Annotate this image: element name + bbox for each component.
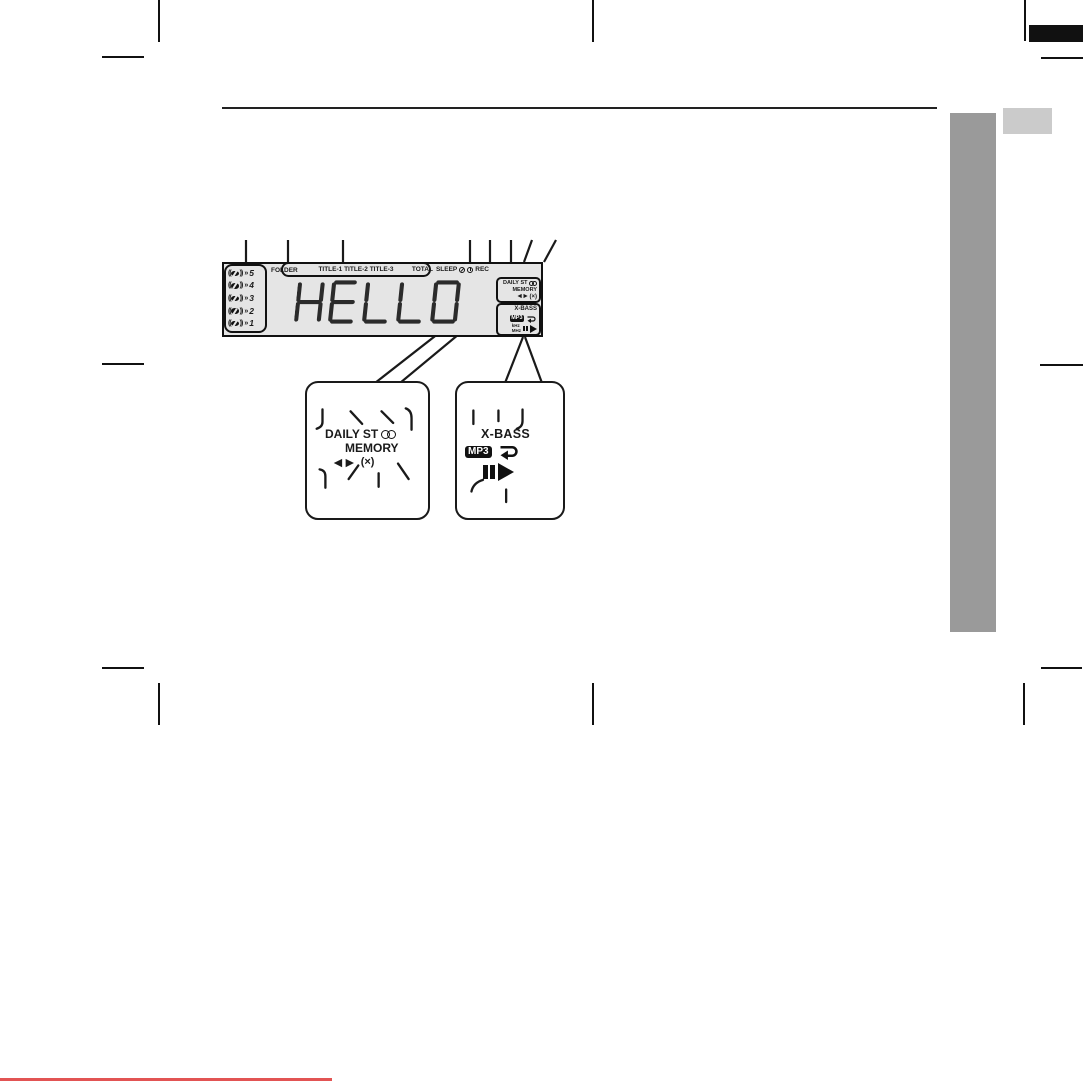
- heading-rule: [222, 107, 937, 109]
- manual-page: (())»5 (())»4 (())»3 (())»2 (())»1 FOLDE…: [0, 0, 1083, 1084]
- st-indicator: ST: [520, 280, 527, 286]
- xbass-indicator: X-BASS: [481, 427, 530, 441]
- disc-paren-right: )): [240, 282, 243, 289]
- disc-number: 2: [249, 308, 254, 315]
- disc-paren-right: )): [240, 308, 243, 315]
- crop-mark-top-center-vertical: [592, 0, 594, 42]
- callout-daily-memory: DAILY ST MEMORY ◄► (×): [305, 381, 430, 520]
- timer-rec-icon: [467, 267, 473, 273]
- disc-number: 1: [249, 320, 254, 327]
- side-tab-light: [1003, 108, 1052, 134]
- chevron-icon: »: [244, 308, 248, 315]
- title-indicators-label: TITLE-1 TITLE-2 TITLE-3: [318, 266, 393, 273]
- sleep-indicator: SLEEP: [436, 266, 457, 273]
- crop-mark-mid-left: [102, 363, 144, 365]
- registration-black-bar: [1029, 25, 1083, 42]
- crop-mark-top-left-vertical: [158, 0, 160, 42]
- xbass-indicator: X-BASS: [514, 306, 537, 313]
- chevron-icon: »: [244, 295, 248, 302]
- stereo-icon: [381, 430, 396, 439]
- pause-icon: [523, 326, 528, 332]
- mp3-badge: MP3: [465, 446, 492, 458]
- mhz-label: MHz: [512, 328, 521, 333]
- chevron-icon: »: [244, 282, 248, 289]
- disc-number: 4: [249, 282, 254, 289]
- disc-icon: [231, 296, 239, 302]
- chevron-icon: »: [244, 270, 248, 277]
- random-icon: (×): [530, 294, 538, 300]
- disc-indicator: (())»5: [228, 270, 265, 277]
- prev-next-icon: ◄►: [516, 294, 528, 300]
- disc-paren-right: )): [240, 270, 243, 277]
- disc-paren-right: )): [240, 295, 243, 302]
- prev-next-icon: ◄►: [331, 454, 355, 470]
- disc-indicator: (())»2: [228, 308, 265, 315]
- mp3-badge: MP3: [510, 315, 524, 322]
- callout-xbass-mp3: X-BASS MP3: [455, 381, 565, 520]
- title-indicator-box: TITLE-1 TITLE-2 TITLE-3: [281, 262, 431, 277]
- crop-mark-low-left-horizontal: [102, 667, 144, 669]
- daily-memory-box: DAILY ST MEMORY ◄► (×): [496, 277, 541, 303]
- frequency-unit-label: kHz MHz: [512, 324, 521, 333]
- status-indicators: TOTAL SLEEP REC: [412, 266, 489, 273]
- crop-mark-mid-right: [1040, 364, 1083, 366]
- total-indicator: TOTAL: [412, 266, 433, 273]
- disc-paren-right: )): [240, 320, 243, 327]
- rec-indicator: REC: [475, 266, 489, 273]
- stereo-icon: [529, 281, 537, 286]
- crop-mark-low-right-horizontal: [1041, 667, 1082, 669]
- footer-red-line: [0, 1078, 332, 1081]
- disc-icon: [231, 271, 239, 277]
- disc-number: 5: [249, 270, 254, 277]
- crop-mark-low-left-vertical: [158, 683, 160, 725]
- disc-indicator: (())»1: [228, 320, 265, 327]
- disc-indicator: (())»3: [228, 295, 265, 302]
- daily-indicator: DAILY: [503, 280, 519, 286]
- repeat-icon: [497, 443, 521, 460]
- disc-icon: [231, 283, 239, 289]
- st-indicator: ST: [363, 427, 378, 441]
- crop-mark-low-center-vertical: [592, 683, 594, 725]
- repeat-icon: [526, 315, 537, 323]
- play-icon: [498, 463, 514, 481]
- lcd-display-panel: (())»5 (())»4 (())»3 (())»2 (())»1 FOLDE…: [222, 262, 543, 337]
- xbass-mp3-box: X-BASS MP3 kHz MHz: [496, 303, 541, 336]
- chevron-icon: »: [244, 320, 248, 327]
- disc-icon: [231, 321, 239, 327]
- crop-mark-top-right-horizontal: [1041, 57, 1083, 59]
- daily-indicator: DAILY: [325, 427, 360, 441]
- memory-indicator: MEMORY: [345, 441, 399, 455]
- disc-number: 3: [249, 295, 254, 302]
- play-icon: [530, 325, 537, 333]
- timer-play-icon: [459, 267, 465, 273]
- disc-indicator-box: (())»5 (())»4 (())»3 (())»2 (())»1: [224, 264, 267, 333]
- segment-display-text: [294, 279, 464, 325]
- display-figure: (())»5 (())»4 (())»3 (())»2 (())»1 FOLDE…: [222, 238, 580, 530]
- disc-indicator: (())»4: [228, 282, 265, 289]
- random-icon: (×): [361, 456, 375, 468]
- disc-icon: [231, 308, 239, 314]
- crop-mark-low-right-vertical: [1023, 683, 1025, 725]
- side-tab-dark: [950, 113, 996, 632]
- crop-mark-top-left-horizontal: [102, 56, 144, 58]
- crop-mark-top-right-vertical: [1024, 0, 1026, 41]
- pause-icon: [483, 465, 495, 479]
